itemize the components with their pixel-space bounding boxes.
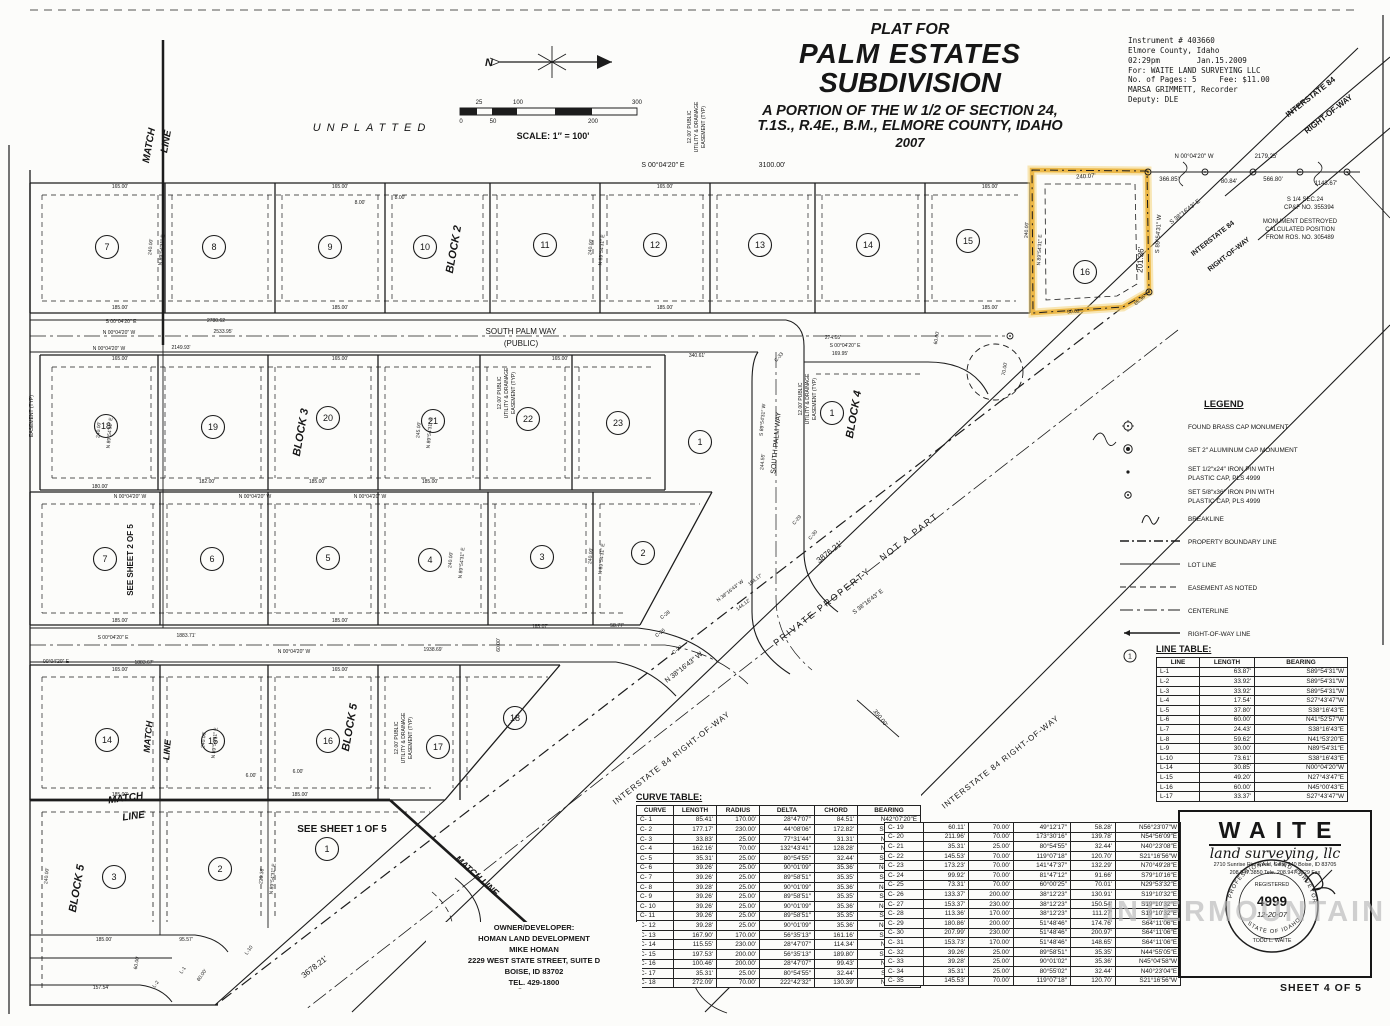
legend-symbol [1118,580,1188,599]
map-label: 185.00' [422,479,438,485]
table-cell: 25.00' [717,863,760,873]
table-row: L-333.92'S89°54'31″W [1157,686,1348,696]
table-cell: 89°58'51″ [760,911,815,921]
table-cell: 70.00' [969,851,1014,861]
table-cell: 90°01'09″ [760,901,815,911]
table-cell: 39.26' [674,911,717,921]
map-label: 157.54' [93,985,109,991]
table-row: C- 27153.37'230.00'38°12'23″150.54'S19°1… [885,899,1181,909]
column-header: CHORD [815,806,858,816]
map-label: LINE [122,809,146,823]
legend-item: EASEMENT AS NOTED [1118,580,1370,599]
legend-label: SET 5/8″x36″ IRON PIN WITH PLASTIC CAP, … [1188,489,1274,506]
lot-number-value: 7 [104,242,109,252]
table-cell: C- 7 [637,873,674,883]
lot-number-value: 23 [613,418,623,428]
table-cell: C- 6 [637,863,674,873]
lot-number-value: 1 [324,844,329,854]
legend-symbol [1118,511,1188,530]
map-label: 1938.69' [423,647,442,653]
map-label: EASEMENT (TYP) [29,395,35,437]
map-label: LINE [159,129,174,154]
map-label: 165.00' [332,667,348,673]
table-row: L-724.43'S38°16'43″E [1157,725,1348,735]
table-cell: 25.00' [969,947,1014,957]
map-label: BLOCK 3 [291,408,311,458]
legend-symbol [1118,419,1188,438]
plat-for-label: PLAT FOR [705,22,1115,39]
lot-number-value: 15 [208,736,218,746]
highlighted-lot-16[interactable] [1032,170,1149,313]
table-cell: 51°48'46″ [1014,928,1071,938]
table-cell: 39.26' [674,863,717,873]
lot-number-value: 17 [433,742,443,752]
map-label: 185.00' [657,305,673,311]
legend-symbol [1118,534,1188,553]
table-row: C- 1735.31'25.00'80°54'55″32.44'S40°31'4… [637,969,921,979]
table-cell: 153.73' [924,938,969,948]
legend-symbol [1118,626,1188,645]
rowline-icon [1118,626,1182,640]
curve-table-right: C- 1960.11'70.00'49°12'17″58.28'N56°23'0… [884,822,1181,986]
table-cell: 31.31' [815,834,858,844]
table-cell: 139.78' [1071,832,1116,842]
table-cell: N56°23'07″W [1116,823,1181,833]
table-row: C- 4162.16'70.00'132°43'41″128.28'N75°21… [637,844,921,854]
table-cell: C- 14 [637,940,674,950]
table-row: C- 22145.53'70.00'119°07'18″120.70'S21°1… [885,851,1181,861]
table-row: C- 18272.09'70.00'222°42'32″130.39'N30°2… [637,978,921,988]
legend-symbol [1118,488,1188,507]
column-header: BEARING [858,806,921,816]
table-cell: S19°10'32″E [1116,890,1181,900]
table-cell: 35.35' [815,892,858,902]
table-cell: 24.43' [1200,725,1255,735]
table-cell: 37.80' [1200,705,1255,715]
surveyor-address: 2710 Sunrise Rim Road, Suite 240 Boise, … [1180,862,1370,870]
map-label: C-26 [654,627,666,639]
map-label: C-28 [659,609,671,621]
table-cell: C- 20 [885,832,924,842]
map-label: UTILITY & DRAINAGE [694,101,700,152]
lot-number: 4 [419,549,442,572]
subdivision-name-line2: SUBDIVISION [705,68,1115,97]
lot-number: 10 [414,236,437,259]
map-label: 165.00' [332,184,348,190]
legend-item: SET 5/8″x36″ IRON PIN WITH PLASTIC CAP, … [1118,488,1370,507]
table-row: C- 3435.31'25.00'80°55'02″32.44'N40°23'0… [885,966,1181,976]
legend-item: FOUND BRASS CAP MONUMENT [1118,419,1370,438]
map-label: UTILITY & DRAINAGE [401,712,407,763]
table-cell: S38°16'43″E [1255,725,1348,735]
table-cell: S27°43'47″W [1255,792,1348,802]
legend-label: BREAKLINE [1188,516,1224,524]
table-row: C- 535.31'25.00'80°54'55″32.44'S49°27'03… [637,853,921,863]
table-cell: C- 13 [637,930,674,940]
table-cell: L-8 [1157,734,1200,744]
table-cell: 132°43'41″ [760,844,815,854]
map-label: S 00°04'20″ E [830,343,862,349]
table-row: L-930.00'N89°54'31″E [1157,744,1348,754]
lot-number: 23 [607,412,630,435]
map-label: 185.00' [292,792,308,798]
table-cell: 70.01' [1071,880,1116,890]
table-cell: S79°10'16″E [1116,870,1181,880]
sheet-number-label: SHEET 4 OF 5 [1280,982,1362,994]
map-label: MATCH [141,126,158,164]
table-cell: 148.65' [1071,938,1116,948]
table-cell: 70.00' [969,832,1014,842]
line-table-title: LINE TABLE: [1156,644,1348,654]
table-cell: 39.26' [674,892,717,902]
table-cell: 38°12'23″ [1014,890,1071,900]
table-cell: S27°43'47″W [1255,696,1348,706]
lot-number-circles: 7891011121314151618192021222311765432141… [94,230,1097,889]
legend-items: FOUND BRASS CAP MONUMENTSET 2″ ALUMINUM … [1118,419,1370,668]
table-cell: N29°53'32″E [1116,880,1181,890]
table-row: C- 1239.28'25.00'90°01'09″35.36'N45°04'5… [637,921,921,931]
lot-number: 8 [203,236,226,259]
lot-number: 7 [96,236,119,259]
map-label: MATCH [142,720,155,753]
map-label: 60.00' [933,331,941,345]
table-cell: 25.00' [717,911,760,921]
map-label: BLOCK 5 [67,863,87,913]
lot-number-value: 10 [420,242,430,252]
monument-icon [1007,333,1013,339]
legend-item: RIGHT-OF-WAY LINE [1118,626,1370,645]
breakline-icon [1118,511,1182,525]
map-label: S 1/4 SEC.24 [1287,197,1324,203]
map-label: N 89°54'31″ E [598,542,607,574]
table-cell: 150.54' [1071,899,1116,909]
title-block: PLAT FOR PALM ESTATES SUBDIVISION A PORT… [705,22,1115,150]
lot-number: 1 [316,838,339,861]
map-label: 1143.67' [1315,181,1337,187]
table-cell: 35.36' [815,882,858,892]
table-row: C- 1960.11'70.00'49°12'17″58.28'N56°23'0… [885,823,1181,833]
map-label: 185.00' [96,937,112,943]
table-cell: 200.97' [1071,928,1116,938]
lot-number: 5 [317,547,340,570]
map-label: C-33 [773,351,785,363]
map-label: N 89°54'31″ E [458,546,467,578]
lot-number-value: 1 [829,408,834,418]
table-cell: 28°47'07″ [760,959,815,969]
lot-number-value: 14 [102,735,112,745]
table-cell: 99.43' [815,959,858,969]
map-label: 185.00' [982,305,998,311]
table-cell: 49°12'17″ [1014,823,1071,833]
table-row: L-233.92'S89°54'31″W [1157,677,1348,687]
lot-number-value: 19 [208,422,218,432]
map-label: 165.00' [112,667,128,673]
table-cell: C- 29 [885,918,924,928]
map-label: N 00°04'20″ W [114,494,147,500]
lot-number: 13 [749,234,772,257]
legend-symbol [1118,603,1188,622]
table-cell: C- 23 [885,861,924,871]
map-label: 12.00' PUBLIC [798,382,804,415]
table-cell: 99.92' [924,870,969,880]
table-cell: 111.27' [1071,909,1116,919]
map-label: SOUTH PALM WAY [770,411,782,474]
table-cell: 170.00' [717,815,760,825]
line-table: LINE TABLE: LINELENGTHBEARINGL-163.87'S8… [1156,644,1348,802]
table-cell: 25.00' [717,892,760,902]
lot-number: 14 [96,729,119,752]
legal-description-line2: T.1S., R.4E., B.M., ELMORE COUNTY, IDAHO [705,119,1115,134]
legend-item: LOT LINE [1118,557,1370,576]
owner-line: HOMAN LAND DEVELOPMENT [426,933,642,944]
table-cell: 130.39' [815,978,858,988]
table-cell: 56°35'13″ [760,930,815,940]
map-label: L-1 [179,966,188,976]
map-label: S 00°04'20″ E [98,635,130,641]
table-cell: 35.35' [815,873,858,883]
table-cell: 70.00' [969,976,1014,986]
map-label: 8.00' [395,195,406,201]
map-label: 165.00' [552,356,568,362]
table-cell: 80°54'55″ [760,969,815,979]
lot-number: 11 [534,234,557,257]
table-row: C- 185.41'170.00'28°47'07″84.51'N42°07'2… [637,815,921,825]
legend-symbol [1118,442,1188,461]
curve-table-title: CURVE TABLE: [636,792,921,802]
table-cell: 39.26' [924,947,969,957]
map-label: 165.00' [112,356,128,362]
map-label: N 89°54'31″ E [1036,234,1044,266]
table-row: C- 3239.26'25.00'89°58'51″35.35'N44°55'0… [885,947,1181,957]
map-label: 165.00' [112,184,128,190]
table-cell: 170.00' [969,938,1014,948]
table-row: C- 16100.46'200.00'28°47'07″99.43'N42°07… [637,959,921,969]
table-cell: 32.44' [1071,966,1116,976]
legend-symbol [1118,465,1188,484]
map-label: 12.00' PUBLIC [497,376,503,409]
recorder-stamp: Instrument # 403660 Elmore County, Idaho… [1128,36,1270,105]
map-label: 2780.62 [207,318,225,324]
map-label: L-2 [152,980,161,990]
table-cell: N70°49'28″E [1116,861,1181,871]
table-row: C- 14115.55'230.00'28°47'07″114.34'N42°0… [637,940,921,950]
map-label: 240.00' [587,239,594,256]
table-row: L-1660.00'N45°00'43″E [1157,782,1348,792]
legend-label: FOUND BRASS CAP MONUMENT [1188,424,1288,432]
table-cell: 33.92' [1200,677,1255,687]
map-label: FROM ROS. NO. 305489 [1266,235,1335,241]
table-cell: C- 18 [637,978,674,988]
lot-number: 18 [504,707,527,730]
lot-number-value: 7 [102,554,107,564]
map-label: BLOCK 5 [340,702,360,752]
map-label: LINE [161,738,173,760]
owner-line: OWNER/DEVELOPER: [426,922,642,933]
table-cell: 25.00' [717,921,760,931]
map-label: 165.00' [982,184,998,190]
map-label: N [485,57,494,69]
table-cell: 39.28' [674,921,717,931]
table-cell: 35.36' [1071,957,1116,967]
table-cell: L-2 [1157,677,1200,687]
map-label: 00°04'20″ E [43,659,70,665]
table-cell: 60.00' [1200,715,1255,725]
table-cell: S38°16'43″E [1255,705,1348,715]
table-row: C- 639.26'25.00'90°01'09″35.36'N45°04'54… [637,863,921,873]
lot-number-value: 13 [755,240,765,250]
table-row: C- 2573.31'70.00'60°00'25″70.01'N29°53'3… [885,880,1181,890]
table-cell: 197.53' [674,949,717,959]
legend-item: SET 2″ ALUMINUM CAP MONUMENT [1118,442,1370,461]
table-cell: L-15 [1157,773,1200,783]
table-cell: 81°47'12″ [1014,870,1071,880]
table-cell: 70.00' [969,880,1014,890]
map-label: 165.00' [332,356,348,362]
map-label: L-10 [244,944,255,956]
table-cell: 80°55'02″ [1014,966,1071,976]
map-label: INTERSTATE 84 RIGHT-OF-WAY [940,713,1061,810]
table-cell: 44°08'06″ [760,825,815,835]
table-cell: 172.82' [815,825,858,835]
map-label: 185.00' [112,618,128,624]
table-cell: 133.37' [924,890,969,900]
map-label: 1883.67' [134,660,153,666]
pinlarge-icon [1118,488,1182,502]
table-row: C- 839.28'25.00'90°01'09″35.36'N45°04'54… [637,882,921,892]
map-label: 25 [476,100,483,106]
table-row: L-417.54'S27°43'47″W [1157,696,1348,706]
owner-line: TEL. 429-1800 [426,977,642,988]
map-label: 229.36' [258,868,265,885]
legend-label: SET 1/2″x24″ IRON PIN WITH PLASTIC CAP, … [1188,466,1274,483]
lot-number-value: 12 [650,240,660,250]
table-row: L-163.87'S89°54'31″W [1157,667,1348,677]
table-cell: 85.41' [674,815,717,825]
table-cell: 60.11' [924,823,969,833]
table-cell: S38°16'43″E [1255,753,1348,763]
map-label: N 89°54'31″ E [269,862,278,894]
map-label: BLOCK 2 [444,225,464,275]
table-cell: 70.00' [717,844,760,854]
map-label: 144.12' [735,598,752,613]
table-row: C- 333.83'25.00'77°31'44″31.31'N51°08'38… [637,834,921,844]
subdivision-name-line1: PALM ESTATES [705,39,1115,68]
table-cell: L-3 [1157,686,1200,696]
table-cell: 90°01'09″ [760,863,815,873]
table-row: C- 28113.36'170.00'38°12'23″111.27'S19°1… [885,909,1181,919]
table-row: C- 739.26'25.00'89°58'51″35.35'S44°55'05… [637,873,921,883]
table-cell: 33.83' [674,834,717,844]
table-cell: C- 27 [885,899,924,909]
owner-line: BOISE, ID 83702 [426,966,642,977]
table-cell: 35.36' [815,921,858,931]
map-label: 60.00' [496,638,502,652]
table-cell: C- 28 [885,909,924,919]
table-cell: 174.76' [1071,918,1116,928]
table-cell: S64°11'06″E [1116,938,1181,948]
table-cell: 114.34' [815,940,858,950]
map-label: N 00°04'20″ W [278,649,311,655]
map-label: 8.00' [355,200,366,206]
table-cell: 60.00' [1200,782,1255,792]
legend-item: BREAKLINE [1118,511,1370,530]
table-cell: 28°47'07″ [760,940,815,950]
table-row: C- 20211.96'70.00'173°30'16″139.78'N54°5… [885,832,1181,842]
column-header: LENGTH [674,806,717,816]
table-cell: S21°16'56″W [1116,976,1181,986]
table-cell: 70.00' [969,870,1014,880]
table-cell: C- 16 [637,959,674,969]
table-cell: 32.44' [815,853,858,863]
table-row: L-660.00'N41°52'57″W [1157,715,1348,725]
map-label: 240.00' [1024,222,1031,239]
map-label: BLOCK 4 [844,390,864,440]
table-cell: C- 33 [885,957,924,967]
column-header: BEARING [1255,658,1348,668]
legend-item: SET 1/2″x24″ IRON PIN WITH PLASTIC CAP, … [1118,465,1370,484]
lot-number: 16 [317,730,340,753]
table-row: L-1733.37'S27°43'47″W [1157,792,1348,802]
table-cell: 207.99' [924,928,969,938]
map-label: 185.00' [112,792,128,798]
table-cell: 35.35' [815,911,858,921]
table-row: L-1549.20'N27°43'47″E [1157,773,1348,783]
easement-icon [1118,580,1182,594]
map-label: C-30 [807,529,819,541]
table-cell: 35.36' [815,863,858,873]
brass-icon [1118,419,1182,433]
table-cell: 80°54'55″ [760,853,815,863]
table-cell: N27°43'47″E [1255,773,1348,783]
lot-number: 6 [201,548,224,571]
table-cell: 35.35' [1071,947,1116,957]
map-label: 185.07' [532,624,548,630]
table-cell: 272.09' [674,978,717,988]
table-cell: 25.00' [717,873,760,883]
column-header: DELTA [760,806,815,816]
legend: LEGEND FOUND BRASS CAP MONUMENTSET 2″ AL… [1118,399,1370,672]
lot-number-value: 16 [1080,267,1090,277]
table-cell: 145.53' [924,851,969,861]
table-cell: 173°30'16″ [1014,832,1071,842]
table-cell: 153.37' [924,899,969,909]
pinsmall-icon [1118,465,1182,479]
table-row: C- 3339.28'25.00'90°01'02″35.36'N45°04'5… [885,957,1181,967]
map-label: 60.00' [196,968,209,983]
table-cell: 51°48'46″ [1014,918,1071,928]
map-label: 566.80' [1263,177,1283,183]
table-cell: 63.87' [1200,667,1255,677]
table-cell: 170.00' [717,930,760,940]
map-label: NOT A PART [878,511,941,563]
table-cell: S64°11'06″E [1116,928,1181,938]
table-cell: L-6 [1157,715,1200,725]
table-cell: 230.00' [717,825,760,835]
table-cell: 35.31' [674,969,717,979]
table-cell: 73.31' [924,880,969,890]
owner-line: 2229 WEST STATE STREET, SUITE D [426,955,642,966]
table-cell: 90°01'09″ [760,882,815,892]
table-cell: 32.44' [1071,842,1116,852]
table-cell: N00°04'20″W [1255,763,1348,773]
table-row: C- 30207.99'230.00'51°48'46″200.97'S64°1… [885,928,1181,938]
lot-number: 1 [689,431,712,454]
table-cell: 59.62' [1200,734,1255,744]
map-label: 95.57' [179,937,193,943]
lot-number-value: 8 [211,242,216,252]
lot-number-value: 21 [428,416,438,426]
map-label: N 00°04'20″ W [1174,154,1213,160]
